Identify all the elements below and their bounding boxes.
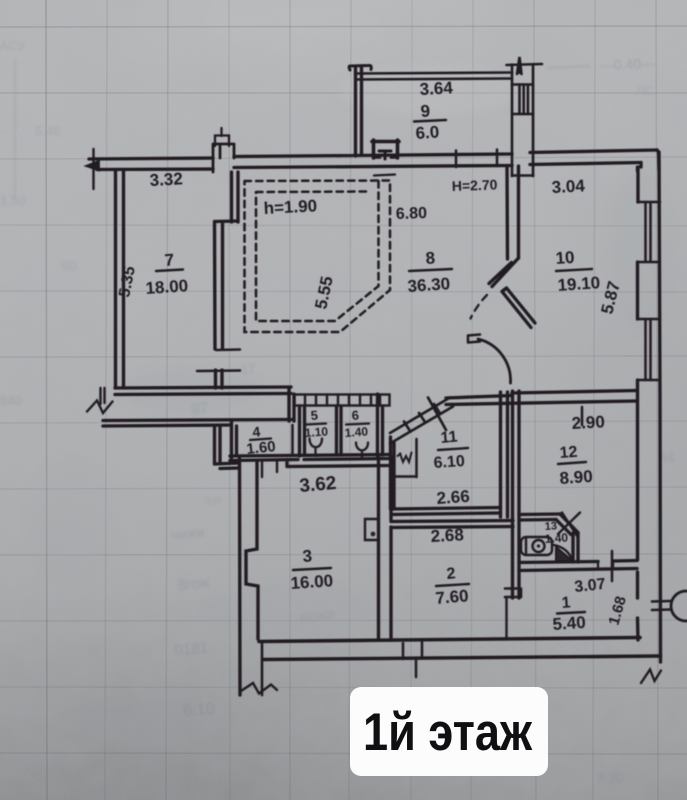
svg-text:8: 8 [425,248,436,268]
svg-text:8гож: 8гож [177,574,210,594]
svg-text:2: 2 [446,565,456,583]
svg-text:3.07: 3.07 [574,576,607,596]
svg-text:1.40: 1.40 [344,424,369,440]
svg-text:8.90: 8.90 [559,467,593,488]
svg-text:2.66: 2.66 [436,487,470,508]
svg-text:иожи: иожи [299,605,336,626]
svg-text:9: 9 [420,101,431,121]
svg-text:18.00: 18.00 [145,276,189,298]
svg-text:11: 11 [440,429,458,447]
svg-text:3: 3 [302,546,313,566]
svg-text:7: 7 [164,250,175,270]
svg-text:3.04: 3.04 [551,176,586,197]
svg-text:6.80: 6.80 [396,205,428,223]
svg-text:60: 60 [62,258,76,273]
svg-text:5.46: 5.46 [35,123,61,139]
svg-text:3.62: 3.62 [299,473,338,497]
svg-text:640: 640 [0,393,22,408]
svg-text:3.32: 3.32 [149,169,183,190]
svg-text:36.30: 36.30 [407,274,451,296]
svg-text:5.40: 5.40 [552,613,586,634]
svg-text:7.60: 7.60 [435,586,470,608]
svg-text:H=2.70: H=2.70 [452,176,498,194]
svg-text:6.10: 6.10 [433,453,465,472]
svg-text:5: 5 [310,408,318,423]
svg-text:46: 46 [660,450,674,465]
svg-text:1.10: 1.10 [304,424,329,440]
svg-text:6.0: 6.0 [415,122,440,143]
svg-text:97: 97 [190,400,209,419]
svg-text:ЛС: ЛС [636,83,654,98]
svg-text:47: 47 [239,360,256,378]
svg-text:2.90: 2.90 [571,412,605,433]
svg-text:12: 12 [559,444,578,462]
svg-text:6:10: 6:10 [183,701,215,720]
svg-text:8.20: 8.20 [598,770,623,785]
svg-text:h=1.90: h=1.90 [263,196,317,218]
svg-text:2.68: 2.68 [430,525,464,546]
svg-text:10: 10 [555,248,575,268]
svg-text:жи: жи [204,492,221,508]
svg-text:3.64: 3.64 [419,78,454,99]
svg-text:19.10: 19.10 [557,273,601,295]
svg-text:чижи: чижи [171,524,205,543]
svg-text:6: 6 [351,408,359,423]
svg-text:АСУ: АСУ [0,38,26,53]
svg-text:1: 1 [561,594,571,612]
svg-text:16.00: 16.00 [290,571,334,593]
svg-text:—0.40—: —0.40— [600,55,656,73]
svg-text:0181: 0181 [174,640,208,659]
svg-text:1й этаж: 1й этаж [363,703,533,762]
